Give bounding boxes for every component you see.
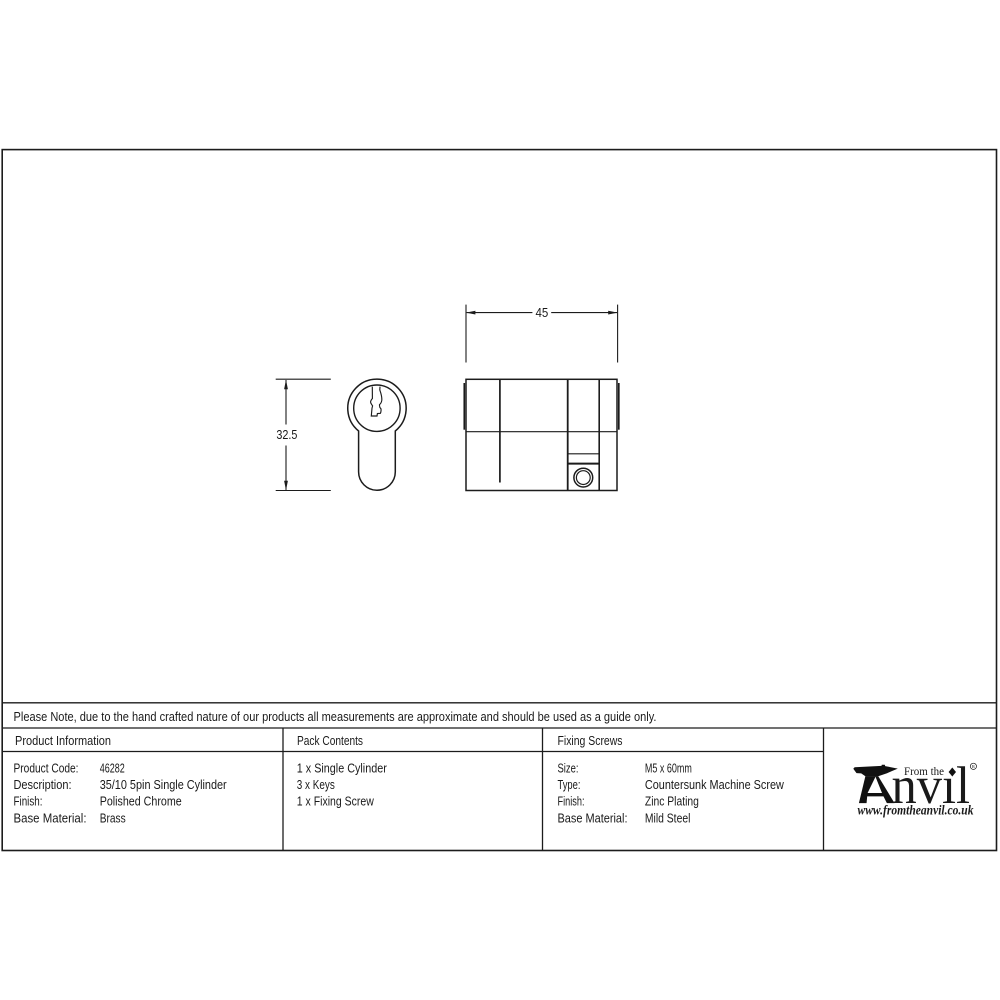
svg-text:1 x Fixing Screw: 1 x Fixing Screw bbox=[297, 794, 374, 809]
svg-text:Brass: Brass bbox=[100, 810, 126, 825]
svg-text:Pack Contents: Pack Contents bbox=[297, 733, 363, 748]
svg-text:Countersunk Machine Screw: Countersunk Machine Screw bbox=[645, 777, 784, 792]
svg-text:Finish:: Finish: bbox=[14, 794, 43, 809]
svg-text:Please Note, due to the hand c: Please Note, due to the hand crafted nat… bbox=[14, 709, 657, 724]
svg-text:45: 45 bbox=[536, 306, 549, 320]
svg-text:Size:: Size: bbox=[558, 760, 579, 775]
svg-text:Description:: Description: bbox=[14, 777, 72, 792]
svg-text:3 x Keys: 3 x Keys bbox=[297, 777, 335, 792]
svg-text:Polished Chrome: Polished Chrome bbox=[100, 794, 182, 809]
svg-text:M5 x 60mm: M5 x 60mm bbox=[645, 760, 692, 775]
svg-text:Base Material:: Base Material: bbox=[558, 810, 628, 825]
svg-text:Finish:: Finish: bbox=[558, 794, 585, 809]
svg-text:Mild Steel: Mild Steel bbox=[645, 810, 691, 825]
svg-text:Fixing Screws: Fixing Screws bbox=[558, 733, 623, 748]
svg-text:32.5: 32.5 bbox=[276, 428, 297, 442]
svg-text:Zinc Plating: Zinc Plating bbox=[645, 794, 699, 809]
svg-text:1 x Single Cylinder: 1 x Single Cylinder bbox=[297, 760, 388, 775]
svg-text:Base Material:: Base Material: bbox=[14, 810, 87, 825]
svg-text:www.fromtheanvil.co.uk: www.fromtheanvil.co.uk bbox=[858, 803, 974, 818]
svg-text:35/10 5pin Single Cylinder: 35/10 5pin Single Cylinder bbox=[100, 777, 228, 792]
svg-text:Product Code:: Product Code: bbox=[14, 760, 79, 775]
svg-text:Product Information: Product Information bbox=[15, 733, 111, 748]
svg-text:46282: 46282 bbox=[100, 760, 125, 775]
svg-text:Type:: Type: bbox=[558, 777, 581, 792]
